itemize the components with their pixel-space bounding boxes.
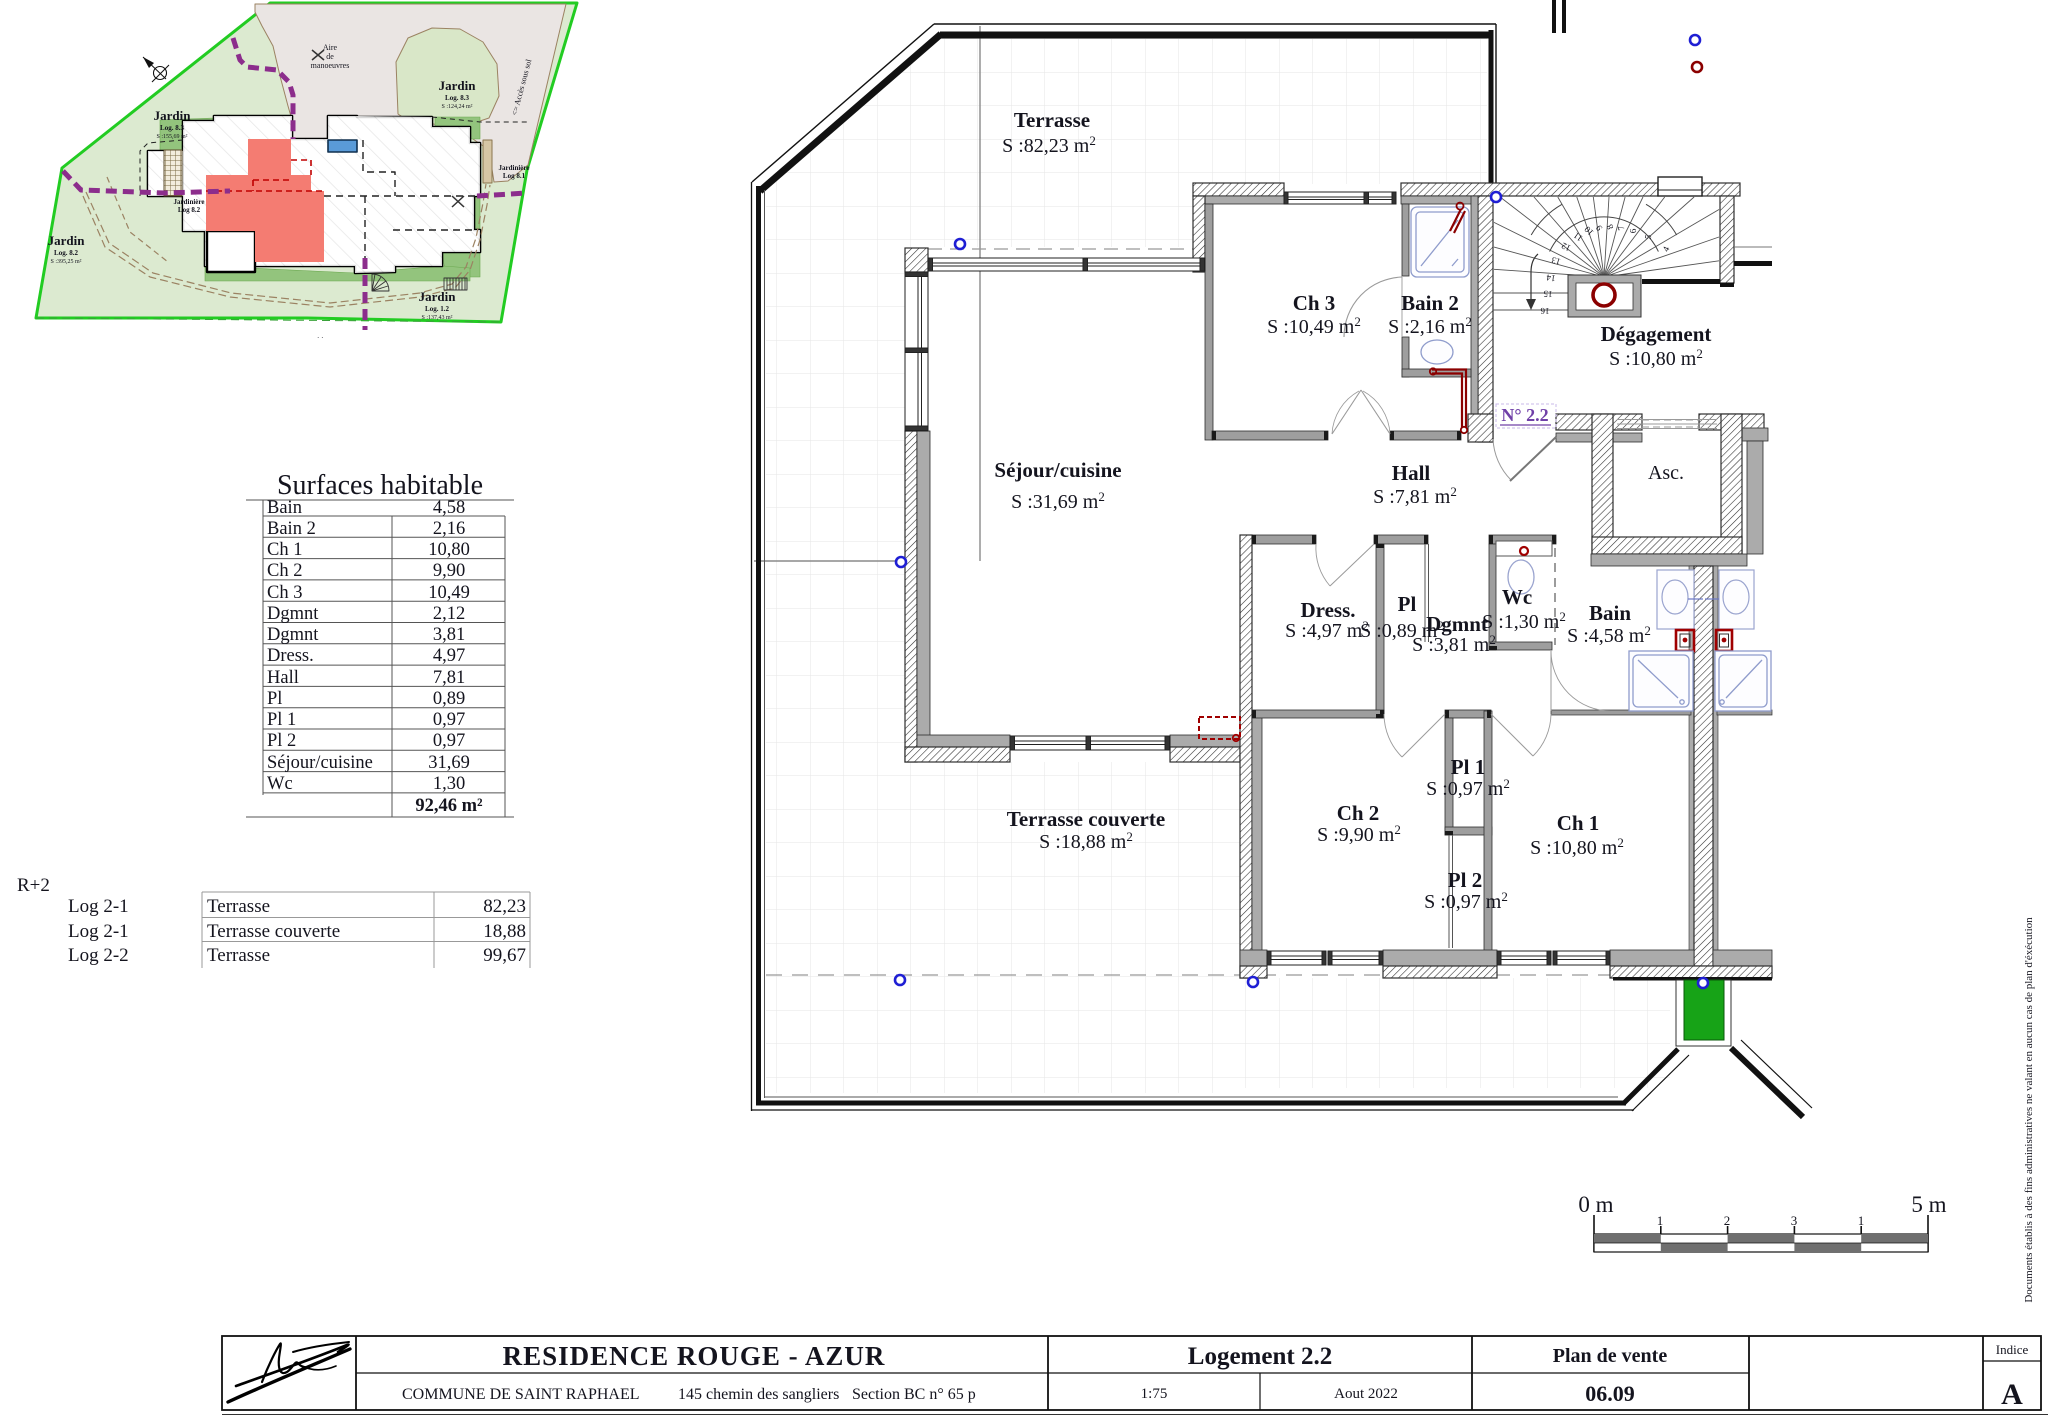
svg-text:· ·: · · <box>317 334 323 342</box>
svg-text:Jardin: Jardin <box>48 233 86 248</box>
svg-text:Documents établis à des fins a: Documents établis à des fins administrat… <box>2023 917 2035 1303</box>
svg-text:Hall: Hall <box>1392 461 1431 485</box>
svg-text:3: 3 <box>1791 1213 1798 1228</box>
svg-text:Terrasse: Terrasse <box>1014 108 1090 132</box>
svg-text:2,12: 2,12 <box>433 604 465 624</box>
svg-text:Bain: Bain <box>267 498 302 518</box>
svg-text:Pl 1: Pl 1 <box>1451 755 1485 779</box>
svg-text:Log. 8.3: Log. 8.3 <box>160 124 184 132</box>
svg-text:18,88: 18,88 <box>483 921 526 942</box>
svg-text:Terrasse: Terrasse <box>207 945 270 966</box>
svg-text:S :18,88 m2: S :18,88 m2 <box>1039 829 1133 853</box>
svg-text:S :0,97 m2: S :0,97 m2 <box>1424 889 1508 913</box>
svg-text:Jardin: Jardin <box>154 108 192 123</box>
svg-text:0 m: 0 m <box>1578 1192 1613 1217</box>
svg-text:S :82,23 m2: S :82,23 m2 <box>1002 133 1096 157</box>
svg-text:Terrasse couverte: Terrasse couverte <box>207 921 340 942</box>
svg-text:S :9,90 m2: S :9,90 m2 <box>1317 822 1401 846</box>
svg-text:Ch 3: Ch 3 <box>267 583 302 603</box>
svg-text:Dress.: Dress. <box>1300 598 1355 622</box>
svg-text:2: 2 <box>1724 1213 1731 1228</box>
svg-text:Dgmnt: Dgmnt <box>1426 612 1488 636</box>
svg-text:S :4,58 m2: S :4,58 m2 <box>1567 623 1651 647</box>
svg-text:S :124,24 m²: S :124,24 m² <box>442 104 473 110</box>
svg-text:2,16: 2,16 <box>433 519 465 539</box>
svg-text:Log. 8.3: Log. 8.3 <box>445 94 469 102</box>
svg-text:Log 8.1: Log 8.1 <box>503 172 526 180</box>
svg-text:Dégagement: Dégagement <box>1601 322 1712 346</box>
svg-text:COMMUNE DE SAINT RAPHAEL: COMMUNE DE SAINT RAPHAEL <box>402 1386 640 1403</box>
svg-text:manoeuvres: manoeuvres <box>311 61 350 70</box>
svg-text:Séjour/cuisine: Séjour/cuisine <box>267 753 373 773</box>
svg-text:Ch 3: Ch 3 <box>1293 291 1336 315</box>
svg-text:Ch 1: Ch 1 <box>1557 811 1600 835</box>
svg-text:14: 14 <box>1545 272 1556 283</box>
svg-text:4,97: 4,97 <box>433 646 465 666</box>
svg-text:Log 2-1: Log 2-1 <box>68 896 129 917</box>
svg-text:S :10,80 m2: S :10,80 m2 <box>1609 346 1703 370</box>
svg-text:31,69: 31,69 <box>428 753 470 773</box>
svg-text:99,67: 99,67 <box>483 945 526 966</box>
svg-text:Section BC n° 65 p: Section BC n° 65 p <box>852 1386 976 1403</box>
svg-text:Bain 2: Bain 2 <box>267 519 316 539</box>
svg-text:Dgmnt: Dgmnt <box>267 625 319 645</box>
svg-text:Jardinière: Jardinière <box>499 164 530 172</box>
svg-text:82,23: 82,23 <box>483 896 526 917</box>
svg-text:92,46 m²: 92,46 m² <box>415 796 483 816</box>
svg-text:S :10,80 m2: S :10,80 m2 <box>1530 835 1624 859</box>
svg-text:Ch 2: Ch 2 <box>1337 801 1380 825</box>
svg-text:145 chemin des sangliers: 145 chemin des sangliers <box>678 1386 839 1403</box>
svg-text:1: 1 <box>1657 1213 1664 1228</box>
svg-text:N° 2.2: N° 2.2 <box>1501 405 1548 425</box>
svg-text:1: 1 <box>1858 1213 1865 1228</box>
svg-text:Bain: Bain <box>1589 601 1631 625</box>
svg-text:Log. 1.2: Log. 1.2 <box>425 305 449 313</box>
svg-text:RESIDENCE ROUGE - AZUR: RESIDENCE ROUGE - AZUR <box>503 1341 886 1371</box>
svg-text:S :7,81 m2: S :7,81 m2 <box>1373 484 1457 508</box>
svg-text:Indice: Indice <box>1996 1342 2029 1357</box>
svg-text:S :0,97 m2: S :0,97 m2 <box>1426 776 1510 800</box>
svg-text:Ch 2: Ch 2 <box>267 561 302 581</box>
svg-text:4,58: 4,58 <box>433 498 465 518</box>
svg-text:S :395,25 m²: S :395,25 m² <box>51 259 82 265</box>
svg-text:Asc.: Asc. <box>1648 462 1684 484</box>
svg-text:S :137,43 m²: S :137,43 m² <box>422 315 453 321</box>
svg-text:Jardinière: Jardinière <box>174 198 205 206</box>
svg-text:A: A <box>2001 1378 2023 1411</box>
svg-text:0,89: 0,89 <box>433 689 465 709</box>
svg-text:Wc: Wc <box>267 774 293 794</box>
svg-text:de: de <box>326 52 334 61</box>
svg-text:Log. 8.2: Log. 8.2 <box>54 249 78 257</box>
svg-text:Terrasse: Terrasse <box>207 896 270 917</box>
svg-text:10,80: 10,80 <box>428 540 470 560</box>
svg-text:1:75: 1:75 <box>1141 1386 1168 1402</box>
svg-text:Log 2-1: Log 2-1 <box>68 921 129 942</box>
svg-text:Terrasse couverte: Terrasse couverte <box>1007 807 1165 831</box>
svg-text:Wc: Wc <box>1502 585 1532 609</box>
svg-text:Aire: Aire <box>323 43 338 52</box>
svg-text:15: 15 <box>1543 289 1553 300</box>
svg-text:Jardin: Jardin <box>439 78 477 93</box>
svg-text:Log 2-2: Log 2-2 <box>68 945 129 966</box>
svg-text:Pl: Pl <box>1398 592 1417 616</box>
svg-text:Séjour/cuisine: Séjour/cuisine <box>994 458 1121 482</box>
svg-text:Jardin: Jardin <box>419 289 457 304</box>
svg-text:Hall: Hall <box>267 668 299 688</box>
svg-text:Pl: Pl <box>267 689 282 709</box>
svg-text:Log 8.2: Log 8.2 <box>178 206 201 214</box>
svg-text:S :10,49 m2: S :10,49 m2 <box>1267 314 1361 338</box>
svg-text:0,97: 0,97 <box>433 731 465 751</box>
svg-text:S :3,81 m2: S :3,81 m2 <box>1412 632 1496 656</box>
svg-text:0,97: 0,97 <box>433 710 465 730</box>
svg-text:1,30: 1,30 <box>433 774 465 794</box>
svg-text:Ch 1: Ch 1 <box>267 540 302 560</box>
svg-text:S :155,69 m²: S :155,69 m² <box>157 134 188 140</box>
svg-text:16: 16 <box>1540 306 1550 316</box>
svg-text:Dgmnt: Dgmnt <box>267 604 319 624</box>
svg-text:R+2: R+2 <box>17 875 50 896</box>
svg-text:S :1,30 m2: S :1,30 m2 <box>1482 609 1566 633</box>
svg-text:9,90: 9,90 <box>433 561 465 581</box>
svg-text:S :31,69 m2: S :31,69 m2 <box>1011 489 1105 513</box>
svg-text:Dress.: Dress. <box>267 646 314 666</box>
svg-text:Aout 2022: Aout 2022 <box>1334 1386 1398 1402</box>
svg-text:Logement 2.2: Logement 2.2 <box>1188 1343 1332 1370</box>
svg-text:Pl 1: Pl 1 <box>267 710 296 730</box>
svg-text:S :2,16 m2: S :2,16 m2 <box>1388 314 1472 338</box>
svg-text:Bain 2: Bain 2 <box>1401 291 1459 315</box>
svg-text:Pl 2: Pl 2 <box>267 731 296 751</box>
svg-text:5 m: 5 m <box>1911 1192 1946 1217</box>
svg-text:Pl 2: Pl 2 <box>1448 868 1482 892</box>
svg-text:S :4,97 m2: S :4,97 m2 <box>1285 618 1369 642</box>
svg-text:Surfaces habitable: Surfaces habitable <box>277 470 483 501</box>
svg-text:06.09: 06.09 <box>1585 1381 1635 1406</box>
svg-text:7,81: 7,81 <box>433 668 465 688</box>
svg-text:3,81: 3,81 <box>433 625 465 645</box>
svg-text:Plan de vente: Plan de vente <box>1553 1345 1668 1367</box>
svg-text:10,49: 10,49 <box>428 583 470 603</box>
